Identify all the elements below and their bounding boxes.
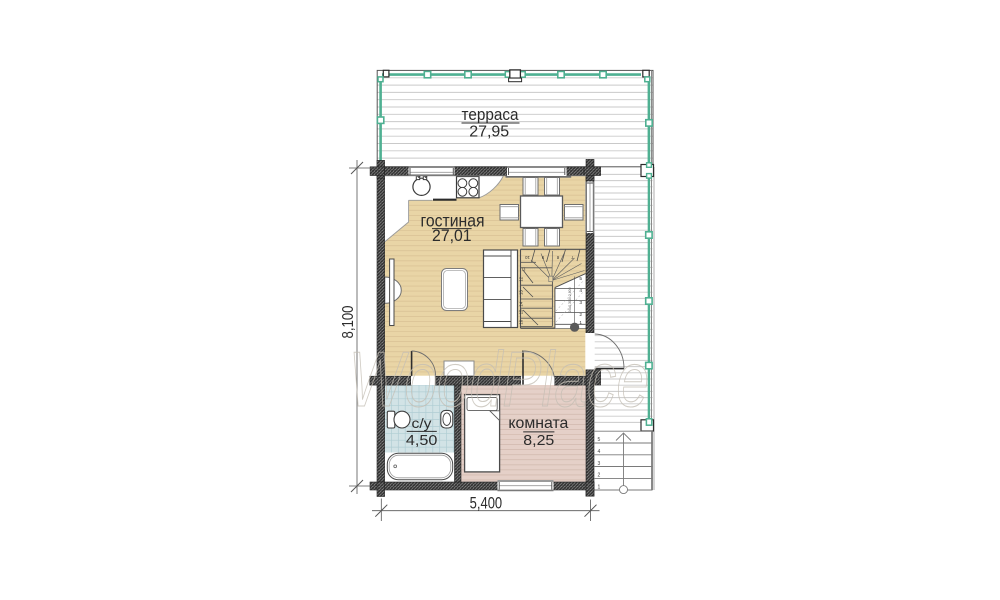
svg-text:16: 16 xyxy=(518,319,523,324)
svg-text:8,25: 8,25 xyxy=(523,432,554,449)
svg-text:27,95: 27,95 xyxy=(469,124,509,141)
svg-text:5,400: 5,400 xyxy=(470,495,503,513)
svg-text:терраса: терраса xyxy=(462,105,519,124)
svg-text:16x0,300=2,800: 16x0,300=2,800 xyxy=(568,287,572,312)
svg-text:14: 14 xyxy=(518,301,523,306)
svg-text:1: 1 xyxy=(598,484,601,490)
svg-text:4: 4 xyxy=(579,288,582,294)
svg-text:15: 15 xyxy=(518,309,523,314)
svg-text:3: 3 xyxy=(598,461,601,467)
svg-text:2: 2 xyxy=(598,473,601,479)
svg-text:27,01: 27,01 xyxy=(432,227,472,245)
svg-text:1: 1 xyxy=(579,320,582,326)
svg-text:2: 2 xyxy=(579,312,582,318)
svg-text:3: 3 xyxy=(579,300,582,306)
svg-text:4,50: 4,50 xyxy=(406,432,438,449)
svg-text:11: 11 xyxy=(521,267,526,272)
svg-text:12: 12 xyxy=(518,276,523,281)
svg-text:10: 10 xyxy=(525,255,530,260)
svg-text:4: 4 xyxy=(598,449,601,455)
svg-text:5: 5 xyxy=(598,437,601,443)
svg-text:5: 5 xyxy=(579,276,582,282)
svg-text:13: 13 xyxy=(518,290,523,295)
svg-text:WoodPlace: WoodPlace xyxy=(349,335,649,423)
svg-text:8,100: 8,100 xyxy=(340,305,357,338)
